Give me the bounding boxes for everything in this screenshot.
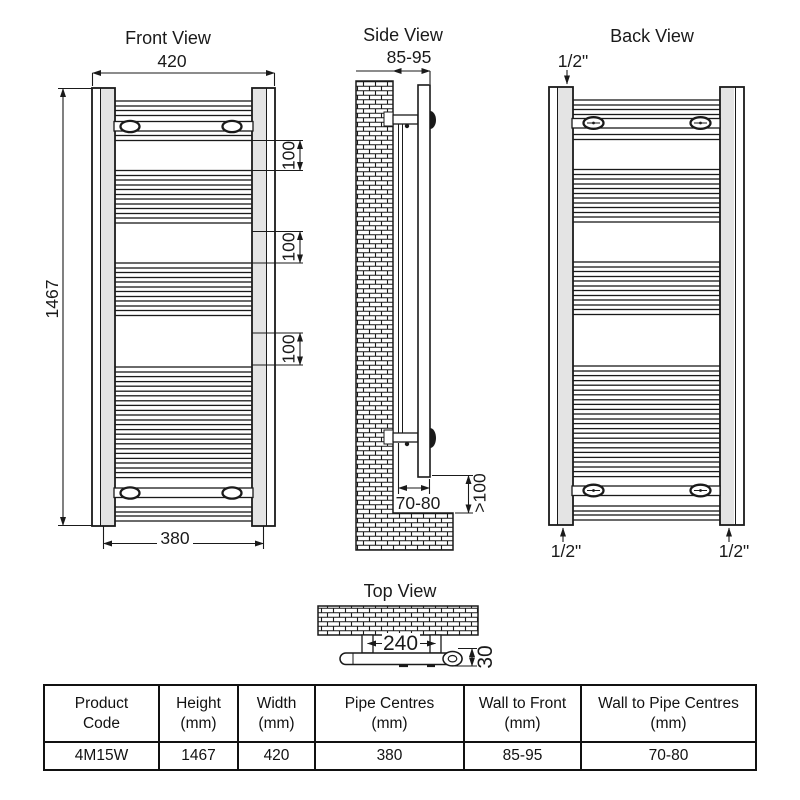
side-bracket-bottom [393, 433, 418, 442]
value-height: 1467 [159, 742, 238, 770]
back-view-title: Back View [610, 26, 695, 46]
bracket-screw [405, 124, 409, 128]
floor-clearance-label: >100 [470, 473, 490, 513]
rung-spacing-label-2: 100 [279, 232, 299, 261]
side-view: Side View 85-95 70-80 [356, 25, 490, 550]
front-right-rail [252, 88, 275, 526]
side-view-title: Side View [363, 25, 444, 45]
top-view: Top View 240 30 [318, 581, 497, 669]
wall-and-floor [356, 81, 453, 550]
front-bracket-rows [114, 121, 253, 499]
wall-to-front-dimension: 85-95 [356, 47, 431, 84]
radiator-technical-drawing: Front View 420 [0, 0, 800, 800]
dimensions-table: ProductCode Height(mm) Width(mm) Pipe Ce… [43, 684, 757, 771]
header-width: Width(mm) [238, 685, 315, 742]
front-height-dimension: 1467 [42, 89, 92, 526]
front-view-title: Front View [125, 28, 212, 48]
back-right-rail [720, 87, 744, 525]
mounting-bracket [121, 487, 140, 498]
rung-spacing-label-1: 100 [279, 141, 299, 170]
side-back-strip [399, 124, 403, 442]
header-wall-to-front: Wall to Front(mm) [464, 685, 581, 742]
bracket-screw [405, 442, 409, 446]
header-wall-to-pipe-centres: Wall to Pipe Centres(mm) [581, 685, 756, 742]
header-pipe-centres: Pipe Centres(mm) [315, 685, 464, 742]
value-width: 420 [238, 742, 315, 770]
wall-bracket [584, 485, 604, 497]
front-view: Front View 420 [42, 28, 303, 549]
side-tube-end [430, 111, 436, 129]
header-height: Height(mm) [159, 685, 238, 742]
wall-bracket [691, 485, 711, 497]
mounting-bracket [121, 121, 140, 132]
side-tube-end [430, 428, 436, 448]
wall-bracket [584, 117, 604, 129]
connection-size-label-top: 1/2" [558, 51, 589, 71]
value-wall-to-front: 85-95 [464, 742, 581, 770]
side-bracket-top [393, 115, 418, 124]
connection-callout-top: 1/2" [558, 51, 589, 84]
value-product-code: 4M15W [44, 742, 159, 770]
top-wall [318, 606, 478, 635]
table-header-row: ProductCode Height(mm) Width(mm) Pipe Ce… [44, 685, 756, 742]
valve [443, 652, 462, 666]
table-value-row: 4M15W 1467 420 380 85-95 70-80 [44, 742, 756, 770]
front-width-dimension: 420 [93, 51, 275, 86]
connection-size-label-bottom-left: 1/2" [551, 541, 582, 561]
back-tubes [572, 100, 720, 520]
drawing-svg: Front View 420 [0, 0, 800, 800]
back-left-rail [549, 87, 573, 525]
top-view-title: Top View [364, 581, 438, 601]
front-pipe-centres-dimension: 380 [104, 526, 264, 549]
back-view: Back View [549, 26, 749, 561]
wall-notch [384, 112, 393, 126]
wall-notch [384, 430, 393, 444]
pipe-centres-label: 380 [160, 528, 189, 548]
connection-callout-bottom-left: 1/2" [551, 528, 582, 561]
wall-to-pipe-label: 70-80 [396, 493, 441, 513]
bracket-centres-label: 240 [383, 632, 418, 655]
height-dimension-label: 1467 [42, 280, 62, 319]
value-wall-to-pipe-centres: 70-80 [581, 742, 756, 770]
header-product-code: ProductCode [44, 685, 159, 742]
value-pipe-centres: 380 [315, 742, 464, 770]
wall-bracket [691, 117, 711, 129]
connection-callout-bottom-right: 1/2" [719, 528, 750, 561]
wall-to-front-label: 85-95 [387, 47, 432, 67]
side-radiator-profile [418, 85, 430, 477]
depth-label: 30 [474, 645, 497, 668]
rung-spacing-label-3: 100 [279, 334, 299, 363]
tube-foot [399, 665, 408, 668]
floor-clearance-dimension: >100 [432, 473, 490, 513]
mounting-bracket [223, 121, 242, 132]
front-left-rail [92, 88, 115, 526]
connection-size-label-bottom-right: 1/2" [719, 541, 750, 561]
front-tubes [114, 101, 253, 521]
mounting-bracket [223, 487, 242, 498]
width-dimension-label: 420 [157, 51, 186, 71]
tube-foot [427, 665, 435, 668]
